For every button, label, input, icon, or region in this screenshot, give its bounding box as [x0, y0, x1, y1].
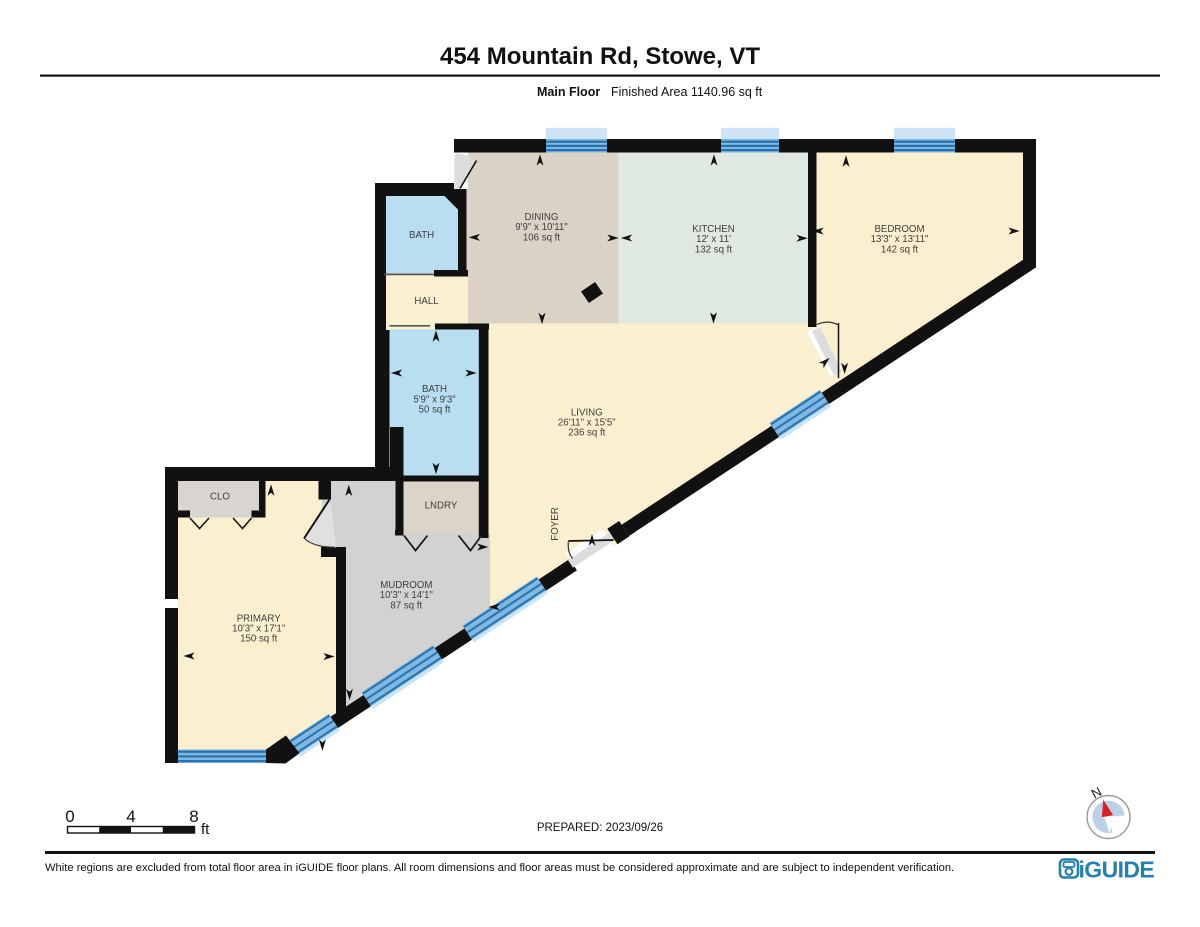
svg-text:0: 0 — [65, 807, 74, 826]
svg-text:50 sq ft: 50 sq ft — [419, 405, 451, 416]
svg-text:142 sq ft: 142 sq ft — [881, 244, 918, 255]
svg-text:PREPARED: 2023/09/26: PREPARED: 2023/09/26 — [537, 822, 663, 834]
svg-text:Finished Area 1140.96 sq ft: Finished Area 1140.96 sq ft — [611, 85, 763, 99]
svg-text:FOYER: FOYER — [550, 507, 561, 540]
svg-text:LNDRY: LNDRY — [425, 501, 458, 512]
svg-text:BATH: BATH — [409, 230, 434, 241]
svg-text:454 Mountain Rd, Stowe, VT: 454 Mountain Rd, Stowe, VT — [440, 43, 760, 70]
svg-text:4: 4 — [126, 807, 135, 826]
svg-text:87 sq ft: 87 sq ft — [390, 600, 422, 611]
svg-text:HALL: HALL — [414, 296, 439, 307]
svg-text:132 sq ft: 132 sq ft — [695, 244, 732, 255]
svg-text:106 sq ft: 106 sq ft — [523, 232, 560, 243]
svg-text:iGUIDE: iGUIDE — [1079, 857, 1155, 883]
svg-text:150 sq ft: 150 sq ft — [240, 634, 277, 645]
svg-text:ft: ft — [201, 821, 210, 838]
svg-text:CLO: CLO — [210, 492, 230, 503]
svg-text:8: 8 — [189, 807, 198, 826]
svg-text:White regions are excluded fro: White regions are excluded from total fl… — [45, 862, 954, 874]
svg-text:Main Floor: Main Floor — [537, 85, 600, 99]
svg-text:236 sq ft: 236 sq ft — [568, 428, 605, 439]
